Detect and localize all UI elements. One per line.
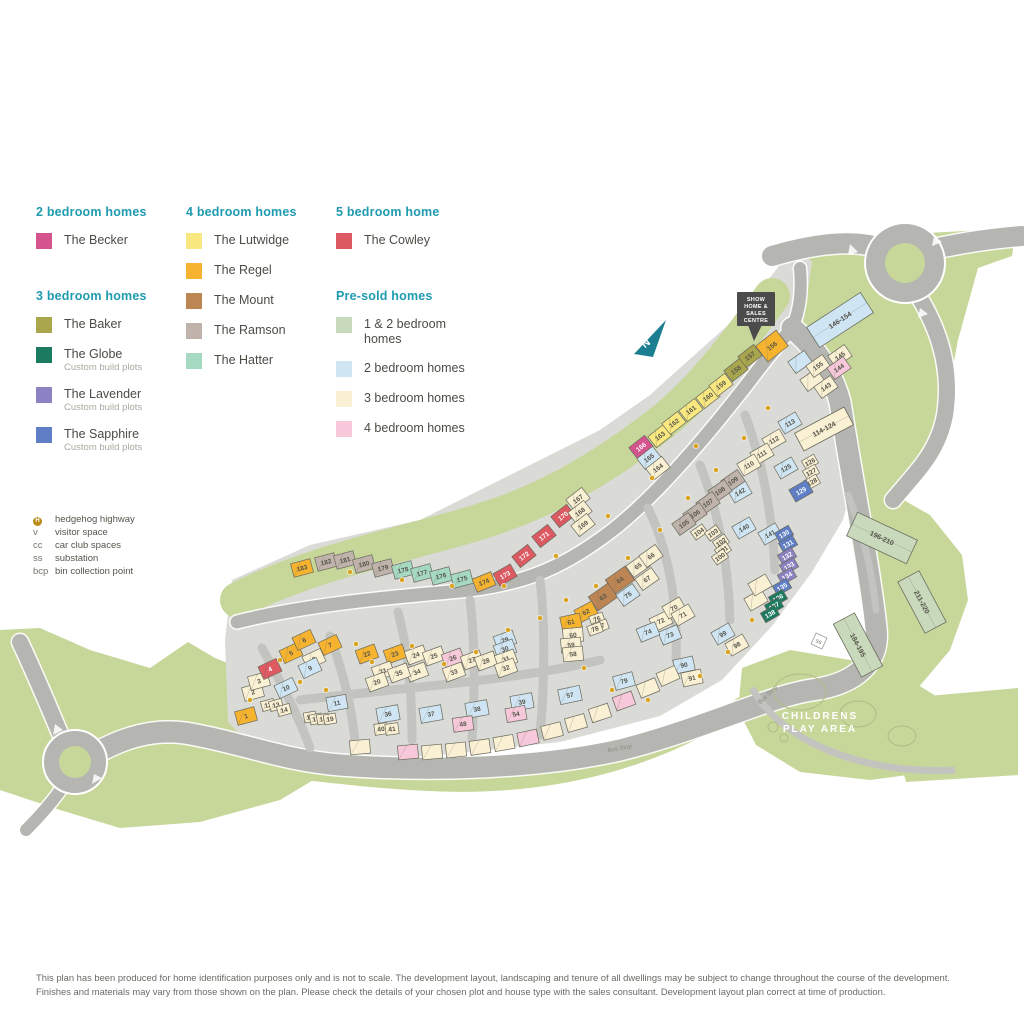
plot-number: 41 xyxy=(388,726,397,734)
legend-group-title: Pre-sold homes xyxy=(336,289,486,303)
legend-item: The Becker xyxy=(36,233,164,249)
disclaimer-line-2: Finishes and materials may vary from tho… xyxy=(36,985,994,998)
key-item: cccar club spaces xyxy=(33,539,135,552)
play-area-label: CHILDRENS xyxy=(782,711,858,722)
key-symbol: ss xyxy=(33,553,55,564)
hedgehog-highway-marker xyxy=(369,659,374,664)
sign-text: SHOW xyxy=(747,297,766,303)
sign-text: SALES xyxy=(746,311,766,317)
legend-swatch xyxy=(186,293,202,309)
hedgehog-highway-marker xyxy=(693,443,698,448)
legend-item-text: The Cowley xyxy=(364,233,430,248)
house-type-name: The Baker xyxy=(64,317,122,332)
hedgehog-highway-marker xyxy=(277,657,282,662)
site-plan-page: 1831821811801791781771761751741731721711… xyxy=(0,0,1024,1024)
hedgehog-highway-marker xyxy=(537,615,542,620)
street xyxy=(540,580,544,735)
legend-group-title: 3 bedroom homes xyxy=(36,289,164,303)
legend-group: 2 bedroom homesThe Becker xyxy=(36,205,164,263)
house-type-name: The Hatter xyxy=(214,353,273,368)
house-type-name: The Globe xyxy=(64,347,142,362)
key-label: bin collection point xyxy=(55,566,133,577)
legend-item: The GlobeCustom build plots xyxy=(36,347,164,373)
play-area-label: PLAY AREA xyxy=(783,724,857,735)
legend-column: 4 bedroom homesThe LutwidgeThe RegelThe … xyxy=(186,205,314,493)
house-type-name: 4 bedroom homes xyxy=(364,421,465,436)
hedgehog-highway-marker xyxy=(605,513,610,518)
legend-item-text: 4 bedroom homes xyxy=(364,421,465,436)
key-item: bcpbin collection point xyxy=(33,565,135,578)
plot xyxy=(349,739,370,755)
custom-build-note: Custom build plots xyxy=(64,362,142,373)
legend-item-text: The LavenderCustom build plots xyxy=(64,387,142,413)
key-item: Hhedgehog highway xyxy=(33,513,135,526)
legend-item-text: The Baker xyxy=(64,317,122,332)
legend-item: 1 & 2 bedroom homes xyxy=(336,317,486,347)
hedgehog-highway-marker xyxy=(749,617,754,622)
legend-swatch xyxy=(336,421,352,437)
legend-column: 2 bedroom homesThe Becker3 bedroom homes… xyxy=(36,205,164,493)
house-type-name: 3 bedroom homes xyxy=(364,391,465,406)
plot: 11 xyxy=(326,694,348,711)
hedgehog-highway-marker xyxy=(247,697,252,702)
plot: 58 xyxy=(562,646,583,662)
legend-swatch xyxy=(186,323,202,339)
legend-item-text: The Regel xyxy=(214,263,272,278)
legend-item-text: 2 bedroom homes xyxy=(364,361,465,376)
legend-item: The Cowley xyxy=(336,233,486,249)
legend-item: The Lutwidge xyxy=(186,233,314,249)
key-label: visitor space xyxy=(55,527,108,538)
hedgehog-highway-marker xyxy=(713,467,718,472)
house-type-name: The Lavender xyxy=(64,387,142,402)
legend-swatch xyxy=(36,317,52,333)
legend-item-text: 3 bedroom homes xyxy=(364,391,465,406)
plot xyxy=(421,744,442,760)
legend-swatch xyxy=(186,233,202,249)
hedgehog-highway-marker xyxy=(649,475,654,480)
hedgehog-highway-marker xyxy=(625,555,630,560)
house-type-name: The Sapphire xyxy=(64,427,142,442)
plot-number: 58 xyxy=(569,651,577,659)
hedgehog-badge-icon: H xyxy=(33,517,42,526)
hedgehog-highway-marker xyxy=(697,673,702,678)
legend-item: The SapphireCustom build plots xyxy=(36,427,164,453)
legend-item-text: The Becker xyxy=(64,233,128,248)
legend-item: The LavenderCustom build plots xyxy=(36,387,164,413)
legend-item: The Mount xyxy=(186,293,314,309)
key-symbol: v xyxy=(33,527,55,538)
hedgehog-highway-marker xyxy=(449,583,454,588)
plot: 48 xyxy=(452,716,474,733)
house-type-name: The Regel xyxy=(214,263,272,278)
plot xyxy=(493,734,515,751)
legend-group: 5 bedroom homeThe Cowley xyxy=(336,205,486,263)
hedgehog-highway-marker xyxy=(685,495,690,500)
roundabout-island xyxy=(59,746,91,778)
hedgehog-highway-marker xyxy=(441,661,446,666)
legend: 2 bedroom homesThe Becker3 bedroom homes… xyxy=(36,205,486,493)
hedgehog-highway-marker xyxy=(657,527,662,532)
hedgehog-highway-marker xyxy=(645,697,650,702)
legend-group-title: 2 bedroom homes xyxy=(36,205,164,219)
hedgehog-highway-marker xyxy=(501,583,506,588)
key-label: substation xyxy=(55,553,98,564)
key-label: car club spaces xyxy=(55,540,121,551)
legend-item-text: The Lutwidge xyxy=(214,233,289,248)
hedgehog-highway-marker xyxy=(353,641,358,646)
custom-build-note: Custom build plots xyxy=(64,402,142,413)
hedgehog-highway-marker xyxy=(593,583,598,588)
key-item: sssubstation xyxy=(33,552,135,565)
legend-group: 3 bedroom homesThe BakerThe GlobeCustom … xyxy=(36,289,164,467)
legend-swatch xyxy=(336,317,352,333)
legend-item: 4 bedroom homes xyxy=(336,421,486,437)
house-type-name: The Mount xyxy=(214,293,274,308)
legend-swatch xyxy=(336,391,352,407)
legend-item-text: The Mount xyxy=(214,293,274,308)
legend-swatch xyxy=(186,353,202,369)
custom-build-note: Custom build plots xyxy=(64,442,142,453)
hedgehog-icon: H xyxy=(33,514,55,526)
legend-item: 3 bedroom homes xyxy=(336,391,486,407)
key-label: hedgehog highway xyxy=(55,514,135,525)
plot-number: 48 xyxy=(459,721,468,729)
house-type-name: The Ramson xyxy=(214,323,286,338)
hedgehog-highway-marker xyxy=(505,627,510,632)
hedgehog-highway-marker xyxy=(581,665,586,670)
legend-item: The Hatter xyxy=(186,353,314,369)
development-site-plan: 1831821811801791781771761751741731721711… xyxy=(0,0,1024,1024)
legend-item: The Regel xyxy=(186,263,314,279)
legend-swatch xyxy=(36,427,52,443)
legend-item: The Baker xyxy=(36,317,164,333)
hedgehog-highway-marker xyxy=(765,405,770,410)
legend-swatch xyxy=(336,233,352,249)
legend-group: 4 bedroom homesThe LutwidgeThe RegelThe … xyxy=(186,205,314,383)
sign-text: HOME & xyxy=(744,304,768,310)
key-item: vvisitor space xyxy=(33,526,135,539)
sign-text: CENTRE xyxy=(744,318,768,324)
legend-swatch xyxy=(186,263,202,279)
plot-number: 40 xyxy=(377,726,386,734)
disclaimer-line-1: This plan has been produced for home ide… xyxy=(36,971,994,984)
plot xyxy=(469,739,491,756)
hedgehog-highway-marker xyxy=(473,649,478,654)
legend-item: 2 bedroom homes xyxy=(336,361,486,377)
key-symbol: bcp xyxy=(33,566,55,577)
legend-item: The Ramson xyxy=(186,323,314,339)
roundabout-island xyxy=(885,243,925,283)
house-type-name: The Cowley xyxy=(364,233,430,248)
hedgehog-highway-marker xyxy=(347,569,352,574)
plot: 41 xyxy=(385,723,399,736)
plot: 19 xyxy=(323,713,337,725)
hedgehog-highway-marker xyxy=(553,553,558,558)
plot xyxy=(397,744,418,760)
hedgehog-highway-marker xyxy=(297,679,302,684)
legend-column: 5 bedroom homeThe CowleyPre-sold homes1 … xyxy=(336,205,486,493)
legend-item-text: The SapphireCustom build plots xyxy=(64,427,142,453)
legend-swatch xyxy=(36,347,52,363)
house-type-name: 2 bedroom homes xyxy=(364,361,465,376)
hedgehog-highway-marker xyxy=(323,687,328,692)
house-type-name: The Lutwidge xyxy=(214,233,289,248)
north-arrow-icon xyxy=(634,320,666,357)
hedgehog-highway-marker xyxy=(409,643,414,648)
plot: 54 xyxy=(505,705,527,722)
map-key: Hhedgehog highwayvvisitor spacecccar clu… xyxy=(33,513,135,578)
legend-group-title: 4 bedroom homes xyxy=(186,205,314,219)
substation-marker: ss xyxy=(811,633,827,649)
legend-item-text: The Hatter xyxy=(214,353,273,368)
hedgehog-highway-marker xyxy=(563,597,568,602)
plot xyxy=(445,742,466,758)
legend-item-text: 1 & 2 bedroom homes xyxy=(364,317,486,347)
hedgehog-highway-marker xyxy=(741,435,746,440)
key-symbol: cc xyxy=(33,540,55,551)
legend-swatch xyxy=(336,361,352,377)
house-type-name: The Becker xyxy=(64,233,128,248)
hedgehog-highway-marker xyxy=(725,649,730,654)
hedgehog-highway-marker xyxy=(399,577,404,582)
house-type-name: 1 & 2 bedroom homes xyxy=(364,317,486,347)
legend-swatch xyxy=(36,387,52,403)
legend-item-text: The GlobeCustom build plots xyxy=(64,347,142,373)
legend-group-title: 5 bedroom home xyxy=(336,205,486,219)
legend-group: Pre-sold homes1 & 2 bedroom homes2 bedro… xyxy=(336,289,486,451)
legend-item-text: The Ramson xyxy=(214,323,286,338)
legend-swatch xyxy=(36,233,52,249)
hedgehog-highway-marker xyxy=(609,687,614,692)
